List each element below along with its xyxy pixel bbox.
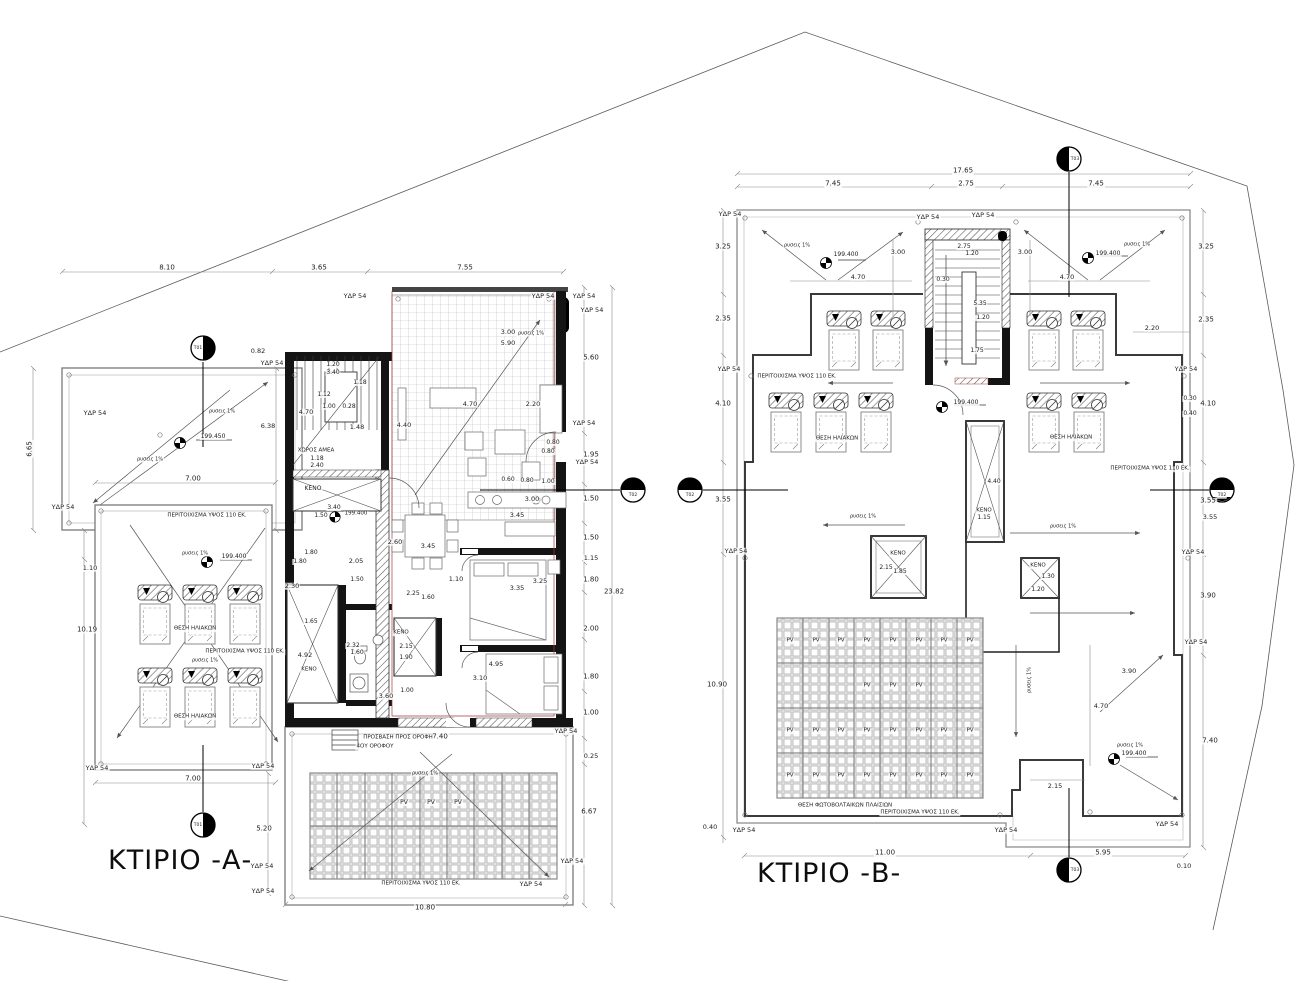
building-a-title: ΚΤΙΡΙΟ -Α- [108, 845, 252, 876]
building-b [721, 147, 1308, 882]
level-marker-icon [201, 556, 212, 567]
level-marker-icon [330, 512, 340, 522]
shaft-void-a [287, 585, 338, 703]
roof-access-icon [332, 730, 358, 750]
pv-array-a [310, 773, 557, 879]
elevator-void-a [293, 479, 381, 511]
level-marker-icon [1108, 753, 1119, 764]
level-marker-icon [174, 437, 185, 448]
building-a [31, 269, 615, 908]
building-b-title: ΚΤΙΡΙΟ -Β- [757, 858, 901, 889]
pv-array-b [777, 618, 983, 798]
chimney-icon [998, 231, 1007, 241]
level-marker-icon [936, 401, 947, 412]
level-marker-icon [820, 257, 831, 268]
stair-core-a [293, 356, 379, 465]
small-void-a [394, 618, 436, 676]
plan-drawing [0, 0, 1308, 981]
floorplan-canvas: 8.103.657.55ΥΔΡ 54ΥΔΡ 54ΥΔΡ 54ΥΔΡ 54ΥΔΡ … [0, 0, 1308, 981]
level-marker-icon [1082, 252, 1093, 263]
